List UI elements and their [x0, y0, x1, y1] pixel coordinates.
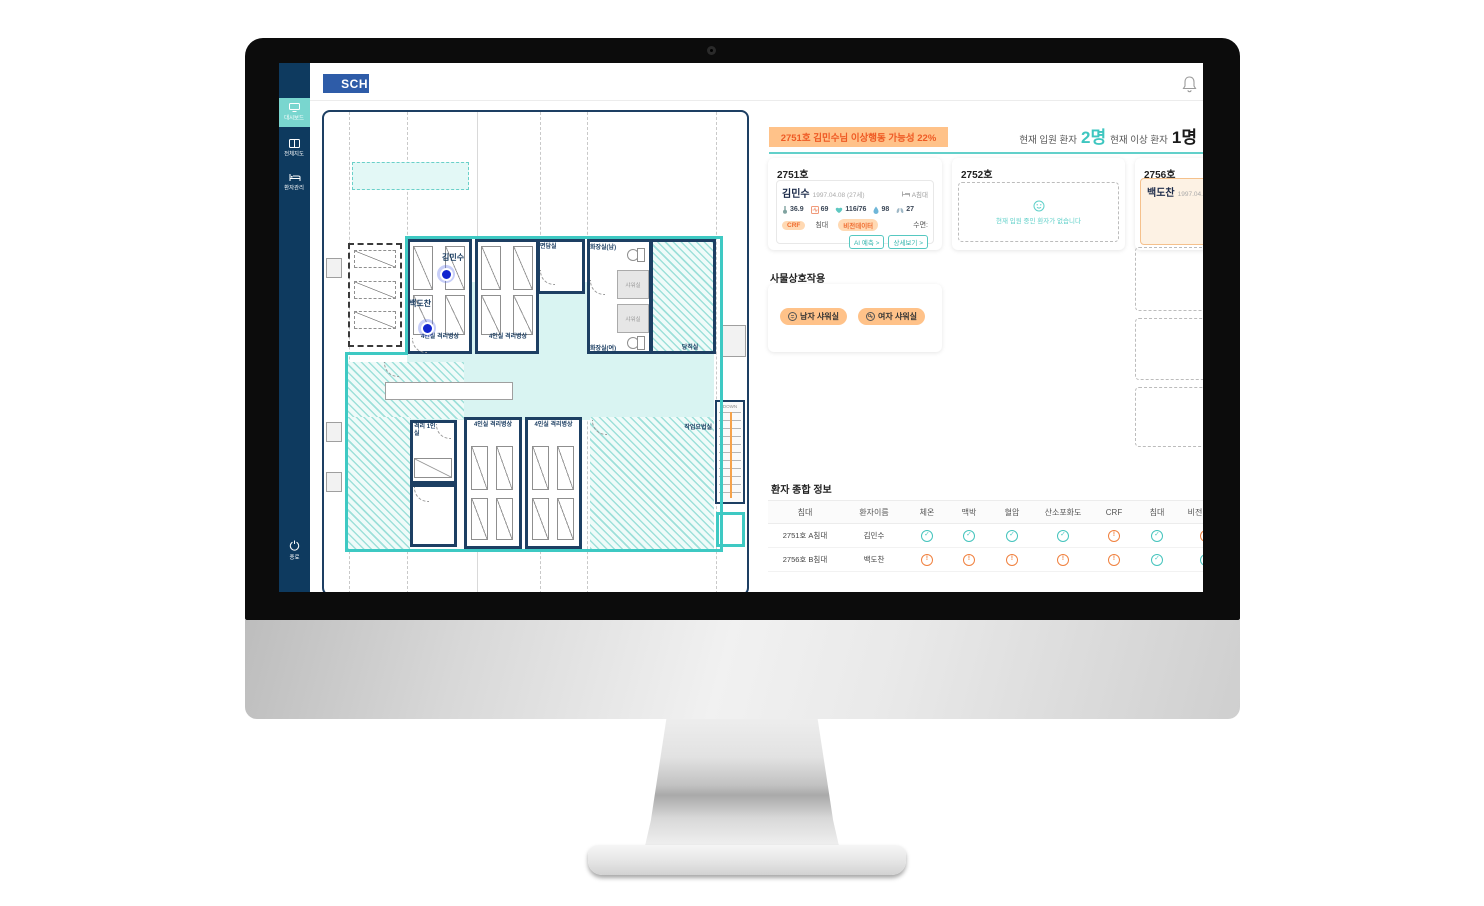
cell-name: 백도찬 [842, 554, 906, 565]
power-icon [289, 540, 300, 551]
vital-spo2: 98 [873, 206, 889, 214]
ward-outline [345, 549, 723, 552]
vital-pulse: 69 [811, 206, 829, 214]
status-icon [1151, 554, 1163, 566]
stair-rail [730, 412, 732, 498]
bed-glyph [532, 498, 549, 540]
cell-name: 김민수 [842, 530, 906, 541]
app-logo: SCH [323, 74, 369, 93]
patient-info-box: 김민수 1997.04.08 (27세) A침대 36.9 69 [776, 180, 934, 244]
empty-room-box: 현재 입원 중인 환자가 없습니다 [958, 182, 1119, 242]
room-label: 면담실 [540, 244, 570, 251]
vital-blood-pressure: 116/76 [835, 206, 866, 214]
abnormal-label: 현재 이상 환자 [1110, 132, 1168, 146]
shower-room: 샤워실 [617, 304, 649, 333]
vital-respiration: 27 [896, 206, 914, 214]
monitor-stand-neck [645, 719, 839, 846]
hatched-area [347, 417, 410, 549]
cell-status [1178, 529, 1203, 541]
col-temperature: 체온 [906, 507, 948, 518]
therapy-room-area [590, 417, 714, 549]
thermometer-icon [782, 205, 788, 214]
crf-badge: CRF [782, 221, 805, 230]
toilet-icon [627, 248, 645, 260]
room-card-title: 2751호 [777, 166, 808, 181]
bed-glyph [496, 446, 513, 490]
cell-status [1136, 553, 1178, 565]
elevator-fixture [720, 325, 746, 357]
wall-fixture [326, 258, 342, 278]
ai-predict-button[interactable]: AI 예측 > [849, 235, 885, 249]
room-card-2752[interactable]: 2752호 현재 입원 중인 환자가 없습니다 [952, 158, 1125, 250]
status-icon [1108, 554, 1120, 566]
interaction-title: 사물상호작용 [770, 270, 825, 285]
table-row[interactable]: 2751호 A침대 김민수 [768, 524, 1203, 548]
room-card-2756[interactable]: 2756호 백도찬 1997.04.08 ( 2 [1135, 158, 1203, 250]
bed-glyph [414, 458, 452, 478]
room-label: 화장실(남) [590, 245, 624, 252]
dashboard-icon [289, 103, 300, 112]
room-label: 4인실 격리병상 [527, 422, 580, 429]
patient-table: 침대 환자이름 체온 맥박 혈압 산소포화도 CRF 침대 비전데이터 2751… [768, 500, 1203, 572]
bed-assignment: A침대 [902, 189, 928, 199]
ward-outline [720, 236, 723, 552]
col-spo2: 산소포화도 [1034, 507, 1092, 518]
floorplan-panel: 4인실 격리병상 4인실 격리병상 김민수 백도찬 면담실 화장실(남) 샤워실… [322, 110, 749, 592]
map-icon [289, 139, 300, 148]
empty-slot-box [1135, 318, 1203, 380]
room-label: 화장실(여) [590, 346, 624, 353]
patient-label: 김민수 [442, 252, 464, 263]
sidebar-item-exit[interactable]: 종료 [279, 536, 310, 565]
admitted-value: 2명 [1081, 123, 1106, 148]
col-bed2: 침대 [1136, 507, 1178, 518]
bed-glyph [481, 295, 501, 335]
col-blood-pressure: 혈압 [990, 507, 1034, 518]
cell-status [1092, 529, 1136, 541]
bed-glyph [496, 498, 513, 540]
patient-birth: 1997.04.08 ( [1178, 191, 1203, 198]
status-icon [963, 530, 975, 542]
abnormal-value: 1명 [1172, 123, 1197, 148]
col-vision: 비전데이터 [1178, 507, 1203, 518]
ward-outline [345, 352, 405, 355]
cell-status [1136, 529, 1178, 541]
sidebar-item-patient-management[interactable]: 환자관리 [279, 168, 310, 197]
bed-glyph [513, 246, 533, 290]
status-icon [1200, 530, 1203, 542]
shower-icon [866, 312, 875, 321]
anomaly-alert-banner[interactable]: 2751호 김민수님 이상행동 가능성 22% [769, 127, 948, 147]
page: SCH 대시보드 전체지도 환자관리 종료 [0, 0, 1484, 906]
male-shower-button[interactable]: 남자 샤워실 [780, 308, 847, 325]
status-icon [1200, 554, 1203, 566]
bed-glyph [445, 295, 465, 335]
col-name: 환자이름 [842, 507, 906, 518]
detail-view-button[interactable]: 상세보기 > [888, 235, 928, 249]
bed-icon [902, 191, 910, 197]
col-pulse: 맥박 [948, 507, 990, 518]
cell-status [906, 529, 948, 541]
wall-fixture [326, 422, 342, 442]
empty-slot-box [1135, 387, 1203, 447]
bed-tag: 침대 [815, 220, 828, 230]
bed-glyph [354, 250, 396, 268]
status-icon [1108, 530, 1120, 542]
female-shower-button[interactable]: 여자 샤워실 [858, 308, 925, 325]
empty-slot-box [1135, 247, 1203, 311]
table-row[interactable]: 2756호 B침대 백도찬 [768, 548, 1203, 572]
ward-outline [345, 352, 348, 552]
bed-glyph [354, 281, 396, 299]
col-bed: 침대 [768, 507, 842, 518]
room-label: 4인실 격리병상 [478, 334, 538, 341]
screen: SCH 대시보드 전체지도 환자관리 종료 [279, 63, 1203, 592]
wall-fixture [326, 472, 342, 492]
status-icon [921, 554, 933, 566]
status-icon [963, 554, 975, 566]
highlight-zone [352, 162, 469, 190]
shower-icon [788, 312, 797, 321]
status-icon [1006, 554, 1018, 566]
app-header: SCH [310, 63, 1203, 101]
notification-bell-icon[interactable] [1181, 75, 1198, 93]
cell-status [990, 529, 1034, 541]
room-card-title: 2752호 [961, 166, 992, 181]
room-card-2751[interactable]: 2751호 김민수 1997.04.08 (27세) A침대 36.9 [768, 158, 942, 250]
bed-glyph [354, 311, 396, 329]
bed-glyph [413, 246, 433, 290]
lungs-icon [896, 206, 904, 214]
patient-label: 백도찬 [409, 298, 431, 309]
toilet-icon [627, 336, 645, 348]
room-label: 4인실 격리병상 [466, 422, 520, 429]
bed-glyph [481, 246, 501, 290]
monitor-stand-base [588, 845, 906, 875]
outside-bed-zone [348, 243, 402, 347]
patient-stats: 현재 입원 환자 2명 현재 이상 환자 1명 [969, 123, 1197, 149]
bed-glyph [557, 446, 574, 490]
cell-status [948, 553, 990, 565]
smiley-icon [1033, 200, 1045, 212]
patient-table-title: 환자 종합 정보 [771, 481, 832, 496]
alert-patient-box: 백도찬 1997.04.08 ( 2 [1140, 178, 1203, 245]
table-header-row: 침대 환자이름 체온 맥박 혈압 산소포화도 CRF 침대 비전데이터 [768, 500, 1203, 524]
cell-status [1034, 529, 1092, 541]
cell-status [1034, 553, 1092, 565]
cell-status [1178, 553, 1203, 565]
sidebar-item-fullmap[interactable]: 전체지도 [279, 134, 310, 163]
bed-glyph [513, 295, 533, 335]
patient-marker[interactable] [437, 265, 455, 283]
nurse-desk [385, 382, 513, 400]
sidebar-item-label: 전체지도 [285, 149, 305, 157]
patient-name: 김민수 [782, 185, 810, 200]
admitted-label: 현재 입원 환자 [1019, 132, 1077, 146]
sidebar-item-label: 종료 [290, 552, 300, 560]
room-label: 작업요법실 [624, 425, 712, 432]
col-crf: CRF [1092, 508, 1136, 517]
sidebar-item-label: 대시보드 [285, 113, 305, 121]
empty-room-message: 현재 입원 중인 환자가 없습니다 [996, 215, 1081, 225]
cell-status [906, 553, 948, 565]
vision-data-badge: 비전데이터 [838, 219, 878, 231]
divider [769, 152, 1203, 154]
status-icon [1057, 530, 1069, 542]
sidebar-item-label: 환자관리 [285, 183, 305, 191]
interaction-card: 남자 샤워실 여자 샤워실 [768, 284, 942, 352]
ward-outline [405, 236, 408, 355]
cell-bed: 2751호 A침대 [768, 530, 842, 541]
patient-birth: 1997.04.08 (27세) [813, 189, 865, 199]
droplet-icon [873, 206, 879, 214]
bed-glyph [532, 446, 549, 490]
cell-bed: 2756호 B침대 [768, 554, 842, 565]
patient-name: 백도찬 [1147, 184, 1175, 199]
cell-status [1092, 553, 1136, 565]
bed-glyph [471, 498, 488, 540]
status-icon [1151, 530, 1163, 542]
vital-temperature: 36.9 [782, 205, 804, 214]
sleep-tag: 수면: [913, 220, 928, 230]
sidebar: 대시보드 전체지도 환자관리 종료 [279, 63, 310, 592]
bed-icon [289, 173, 301, 182]
ward-outline [405, 236, 723, 239]
status-icon [1057, 554, 1069, 566]
room-duty [650, 239, 716, 354]
status-icon [1006, 530, 1018, 542]
bed-glyph [557, 498, 574, 540]
sidebar-item-dashboard[interactable]: 대시보드 [279, 98, 310, 127]
bed-glyph [471, 446, 488, 490]
patient-marker[interactable] [418, 319, 436, 337]
monitor-camera [707, 46, 716, 55]
monitor-chin [245, 620, 1240, 719]
room-label: 당직실 [674, 345, 706, 352]
shower-room: 샤워실 [617, 270, 649, 299]
status-icon [921, 530, 933, 542]
pulse-icon [811, 206, 819, 214]
cell-status [948, 529, 990, 541]
cell-status [990, 553, 1034, 565]
heart-icon [835, 206, 843, 214]
